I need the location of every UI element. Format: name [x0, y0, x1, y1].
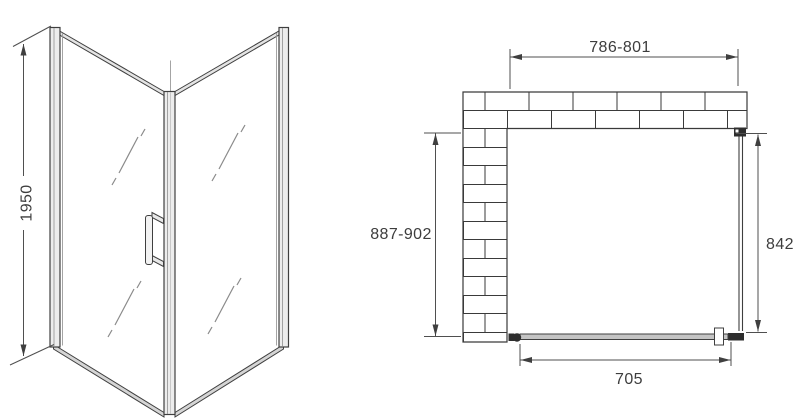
side-panel-plan: [728, 128, 746, 341]
dimension-door-opening: 705: [520, 342, 731, 388]
door-knob: [715, 328, 724, 345]
door-pivot: [513, 333, 521, 341]
perspective-view: 1950: [10, 26, 289, 417]
door-panel-plan: [509, 328, 729, 345]
dimension-label-door-opening: 705: [615, 371, 643, 388]
dimension-left-depth: 887-902: [370, 133, 461, 337]
dimension-right-panel: 842: [736, 134, 794, 333]
dimension-label-right-panel: 842: [766, 236, 794, 253]
plan-view: 786-801 887-902 842 705: [370, 39, 794, 388]
dimension-label-left-depth: 887-902: [370, 226, 432, 243]
dimension-label-height: 1950: [19, 184, 36, 221]
technical-drawing-canvas: 1950 786-801: [0, 0, 800, 418]
dimension-height: 1950: [10, 26, 54, 365]
door-leaf: [520, 334, 728, 340]
shower-enclosure-drawing: 1950 786-801: [0, 0, 800, 418]
bracket-notch: [736, 130, 739, 133]
wall-profile-right: [279, 28, 289, 348]
wall-profile-left: [50, 28, 60, 348]
brick-wall: [463, 92, 747, 342]
corner-post: [164, 92, 175, 415]
dimension-top-width: 786-801: [510, 39, 738, 89]
dimension-label-top-width: 786-801: [589, 39, 651, 56]
corner-bracket-bottom: [728, 333, 744, 341]
